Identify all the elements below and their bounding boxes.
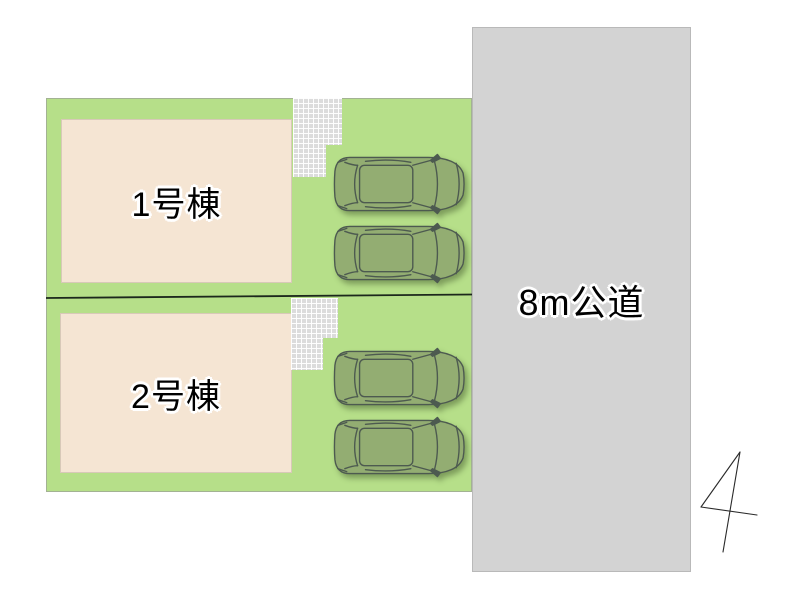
car-icon <box>330 347 468 409</box>
lot-divider-line <box>46 289 472 303</box>
road-label: 8m公道 <box>518 274 644 326</box>
building-1: 1号棟 <box>61 119 292 283</box>
car-icon <box>330 416 468 478</box>
north-arrow-icon <box>693 443 765 561</box>
site-plan: 1号棟 2号棟 8m公道 <box>0 0 800 600</box>
building-1-label: 1号棟 <box>132 177 222 226</box>
car-icon <box>330 153 468 215</box>
road-area: 8m公道 <box>472 27 691 572</box>
building-2-label: 2号棟 <box>131 369 221 418</box>
building-2: 2号棟 <box>60 313 292 473</box>
car-icon <box>330 222 468 284</box>
